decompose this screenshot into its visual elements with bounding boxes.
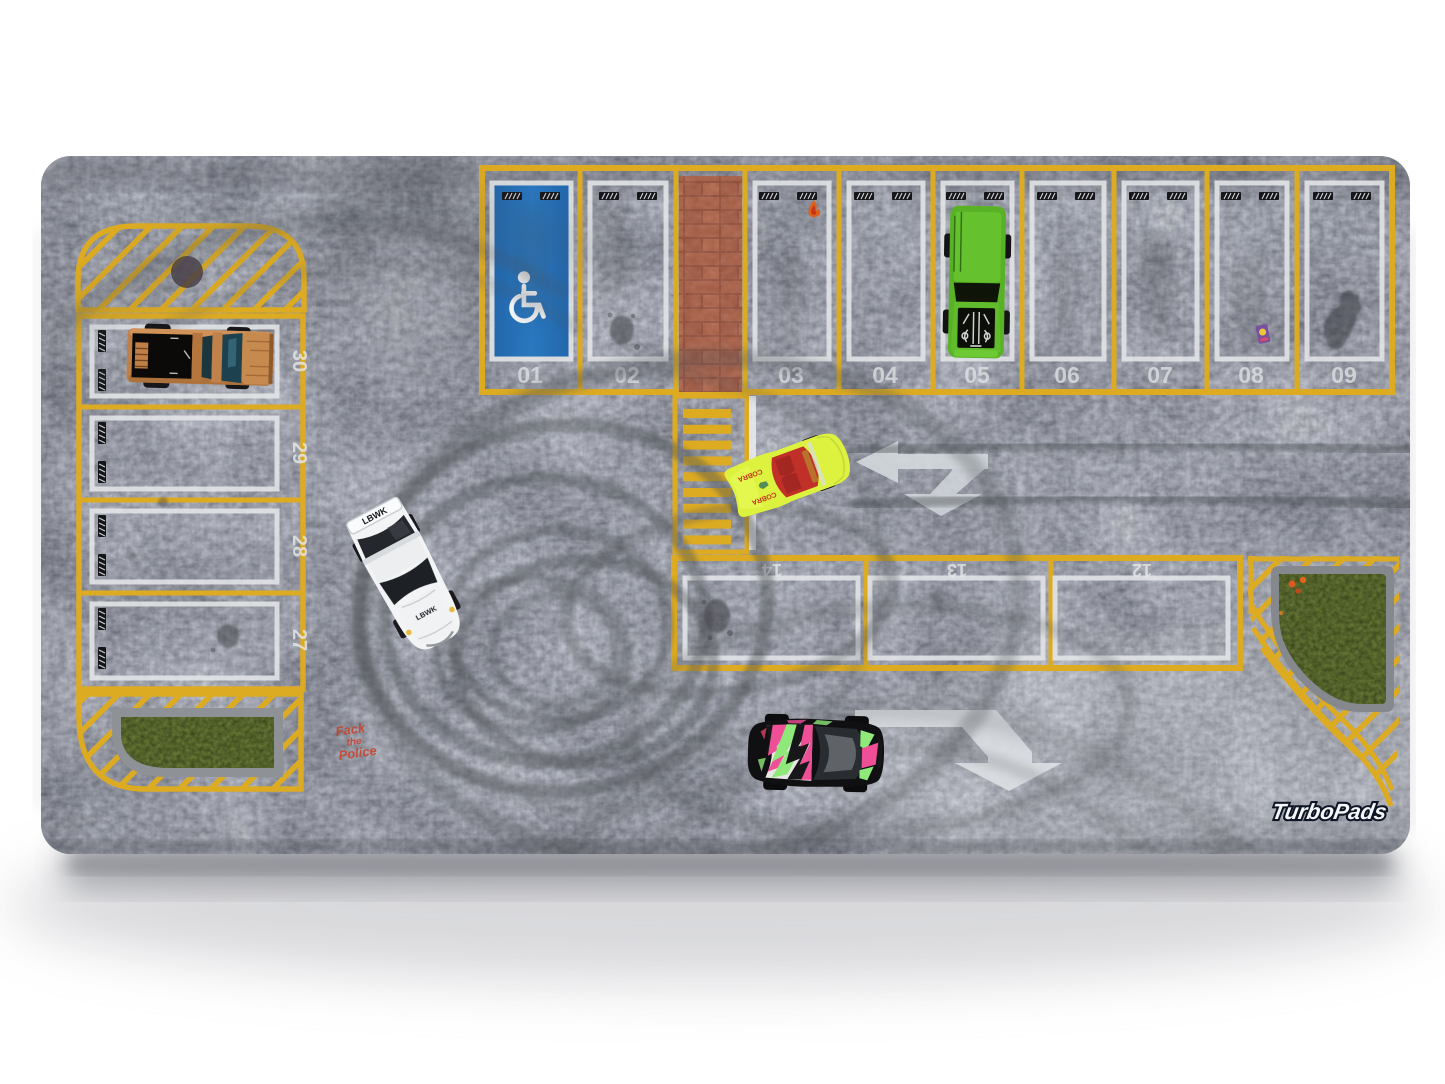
svg-text:28: 28 bbox=[288, 535, 310, 557]
svg-text:05: 05 bbox=[964, 362, 990, 388]
svg-text:08: 08 bbox=[1238, 362, 1264, 388]
svg-text:07: 07 bbox=[1147, 362, 1173, 388]
svg-text:12: 12 bbox=[1132, 560, 1152, 580]
svg-text:29: 29 bbox=[288, 442, 310, 464]
svg-text:06: 06 bbox=[1054, 362, 1080, 388]
svg-text:09: 09 bbox=[1331, 362, 1357, 388]
svg-text:13: 13 bbox=[947, 560, 967, 580]
svg-text:TurboPads: TurboPads bbox=[1270, 799, 1389, 824]
svg-text:27: 27 bbox=[288, 629, 310, 651]
svg-text:30: 30 bbox=[288, 350, 310, 372]
